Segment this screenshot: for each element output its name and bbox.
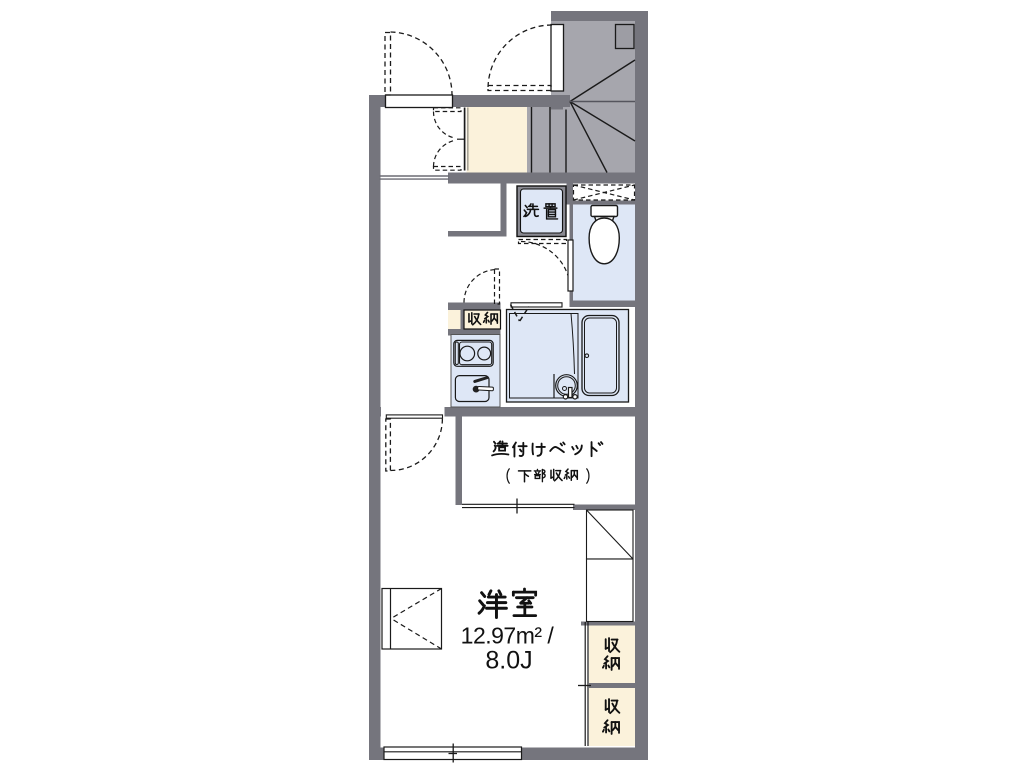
svg-text:12.97m² /: 12.97m² / [461,623,555,649]
svg-text:8.0J: 8.0J [485,647,532,675]
